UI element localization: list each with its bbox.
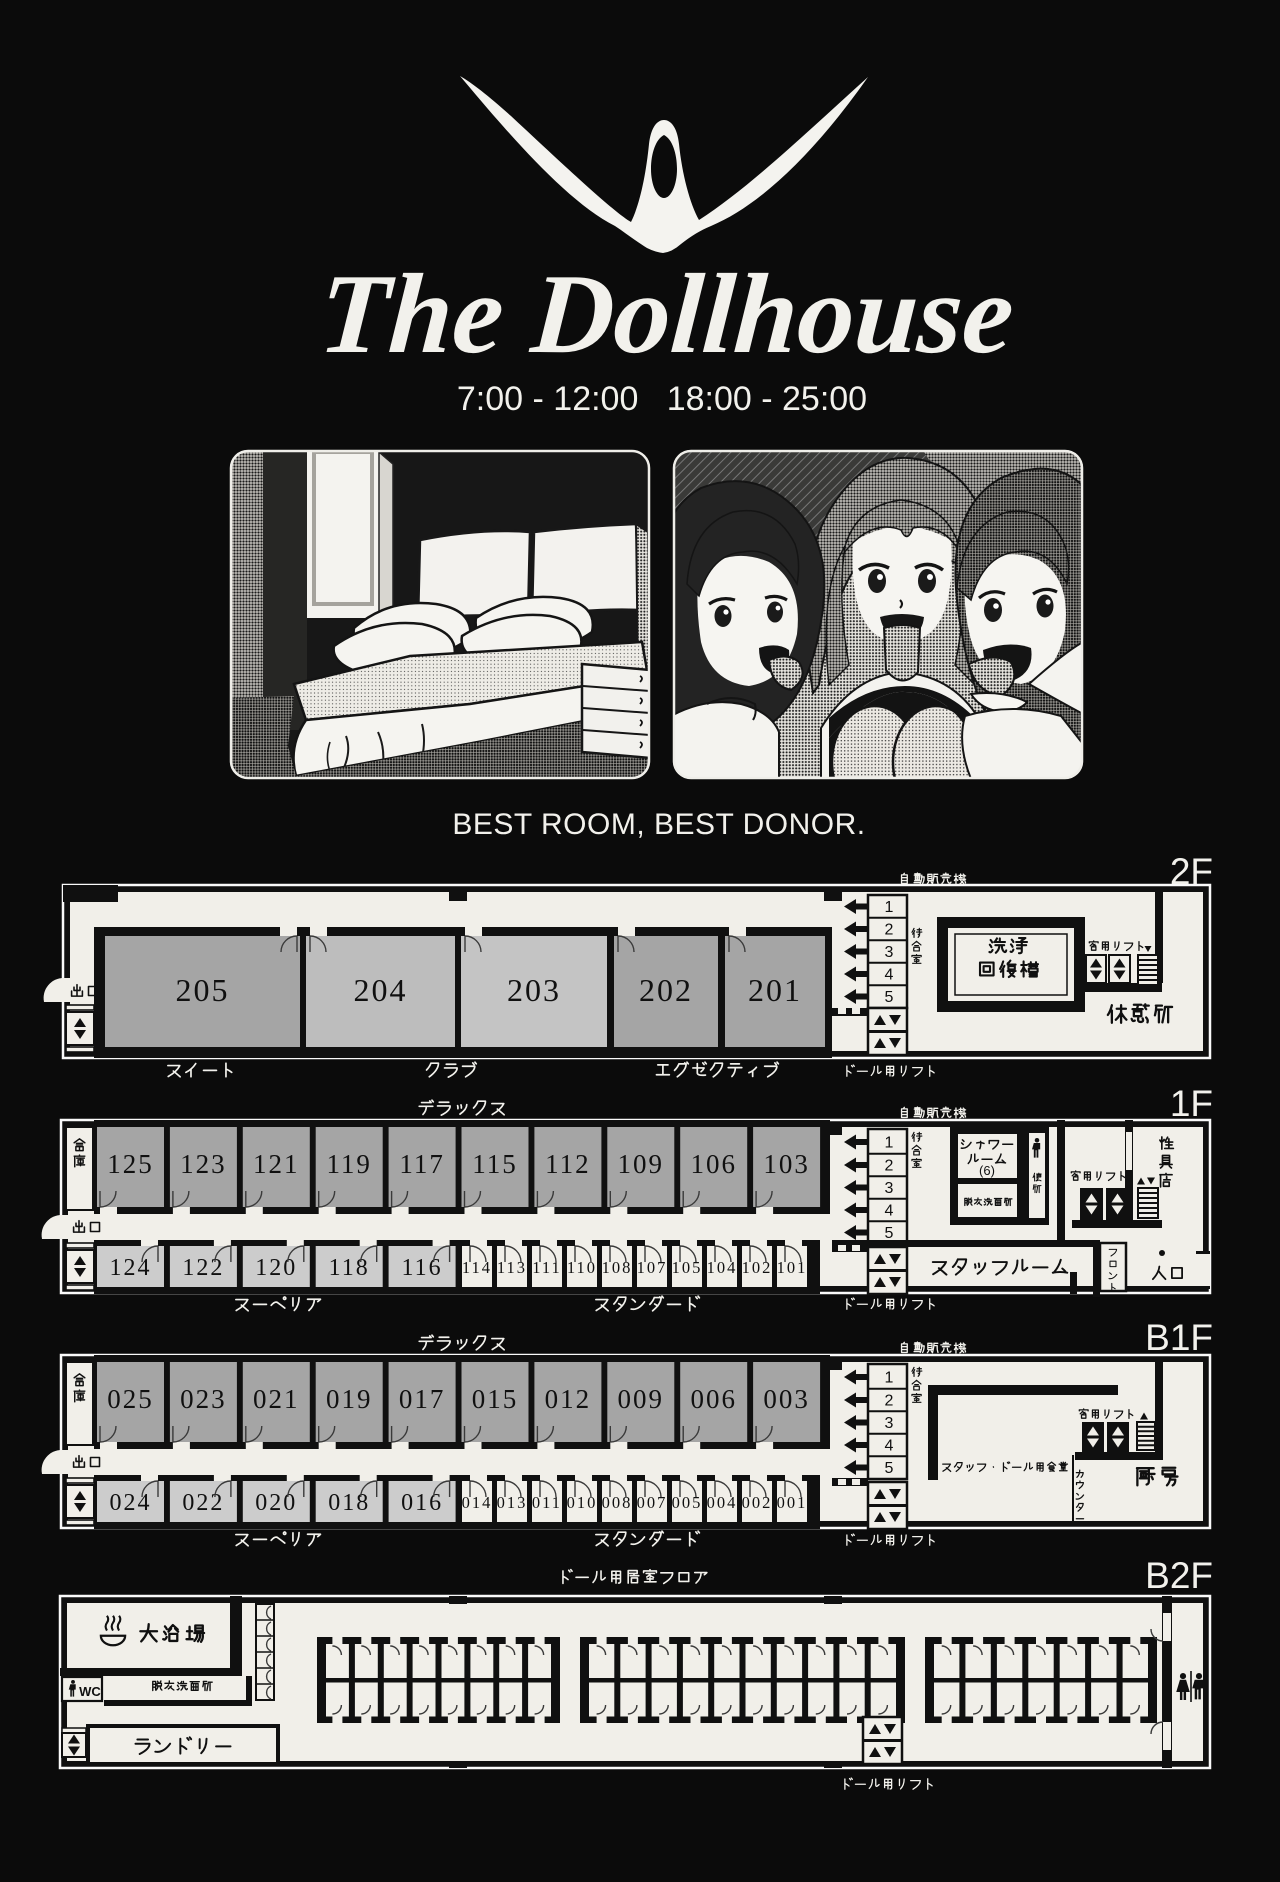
- svg-text:113: 113: [497, 1258, 527, 1277]
- svg-text:1: 1: [885, 1370, 894, 1387]
- svg-text:102: 102: [742, 1258, 773, 1277]
- svg-text:107: 107: [637, 1258, 668, 1277]
- svg-text:112: 112: [545, 1149, 591, 1179]
- svg-text:116: 116: [402, 1255, 443, 1281]
- svg-text:204: 204: [354, 972, 408, 1008]
- svg-text:115: 115: [472, 1149, 518, 1179]
- svg-text:5: 5: [885, 989, 894, 1006]
- svg-text:4: 4: [885, 967, 894, 984]
- svg-text:1: 1: [885, 1135, 894, 1152]
- svg-text:201: 201: [748, 972, 802, 1008]
- svg-text:022: 022: [182, 1490, 224, 1516]
- svg-text:7:00 - 12:00 18:00 - 25:00: 7:00 - 12:00 18:00 - 25:00: [457, 380, 867, 418]
- svg-text:025: 025: [107, 1384, 154, 1414]
- svg-text:3: 3: [885, 1415, 894, 1432]
- svg-text:014: 014: [462, 1493, 493, 1512]
- svg-text:205: 205: [176, 972, 230, 1008]
- svg-text:018: 018: [328, 1490, 370, 1516]
- svg-text:007: 007: [637, 1493, 668, 1512]
- svg-text:B2F: B2F: [1145, 1555, 1213, 1596]
- svg-text:118: 118: [329, 1255, 370, 1281]
- svg-text:106: 106: [690, 1149, 737, 1179]
- svg-text:2: 2: [885, 1158, 894, 1175]
- svg-text:125: 125: [107, 1149, 154, 1179]
- svg-text:5: 5: [885, 1225, 894, 1242]
- svg-text:012: 012: [545, 1384, 592, 1414]
- svg-text:2F: 2F: [1170, 851, 1213, 892]
- svg-text:114: 114: [462, 1258, 492, 1277]
- svg-text:4: 4: [885, 1438, 894, 1455]
- svg-text:1F: 1F: [1170, 1083, 1213, 1124]
- svg-text:110: 110: [567, 1258, 597, 1277]
- svg-text:202: 202: [639, 972, 693, 1008]
- svg-text:016: 016: [401, 1490, 443, 1516]
- svg-text:024: 024: [110, 1490, 152, 1516]
- svg-text:BEST ROOM, BEST DONOR.: BEST ROOM, BEST DONOR.: [452, 808, 865, 841]
- svg-text:3: 3: [885, 944, 894, 961]
- svg-text:5: 5: [885, 1460, 894, 1477]
- svg-text:101: 101: [777, 1258, 808, 1277]
- svg-text:010: 010: [567, 1493, 598, 1512]
- svg-text:015: 015: [472, 1384, 519, 1414]
- svg-text:121: 121: [253, 1149, 300, 1179]
- svg-text:203: 203: [507, 972, 561, 1008]
- svg-text:023: 023: [180, 1384, 227, 1414]
- svg-text:2: 2: [885, 922, 894, 939]
- svg-text:3: 3: [885, 1180, 894, 1197]
- svg-text:122: 122: [182, 1255, 224, 1281]
- svg-text:119: 119: [326, 1149, 372, 1179]
- svg-text:021: 021: [253, 1384, 300, 1414]
- svg-text:B1F: B1F: [1145, 1317, 1213, 1358]
- svg-text:2: 2: [885, 1393, 894, 1410]
- svg-text:019: 019: [326, 1384, 373, 1414]
- svg-text:117: 117: [399, 1149, 445, 1179]
- svg-text:The Dollhouse: The Dollhouse: [316, 250, 1018, 377]
- svg-text:008: 008: [602, 1493, 633, 1512]
- svg-text:WC: WC: [79, 1684, 101, 1699]
- svg-text:104: 104: [707, 1258, 738, 1277]
- svg-text:120: 120: [255, 1255, 297, 1281]
- svg-text:004: 004: [707, 1493, 738, 1512]
- svg-text:002: 002: [742, 1493, 773, 1512]
- svg-text:105: 105: [672, 1258, 703, 1277]
- svg-text:123: 123: [180, 1149, 227, 1179]
- svg-text:001: 001: [777, 1493, 808, 1512]
- svg-text:006: 006: [690, 1384, 737, 1414]
- svg-text:017: 017: [399, 1384, 446, 1414]
- svg-text:013: 013: [497, 1493, 528, 1512]
- svg-text:005: 005: [672, 1493, 703, 1512]
- svg-text:111: 111: [532, 1258, 562, 1277]
- svg-text:103: 103: [763, 1149, 810, 1179]
- svg-text:(6): (6): [979, 1163, 995, 1178]
- svg-text:108: 108: [602, 1258, 633, 1277]
- svg-text:1: 1: [885, 899, 894, 916]
- svg-text:003: 003: [763, 1384, 810, 1414]
- svg-text:011: 011: [532, 1493, 562, 1512]
- svg-text:009: 009: [618, 1384, 665, 1414]
- svg-text:109: 109: [618, 1149, 665, 1179]
- svg-text:124: 124: [110, 1255, 152, 1281]
- svg-text:020: 020: [255, 1490, 297, 1516]
- svg-text:4: 4: [885, 1203, 894, 1220]
